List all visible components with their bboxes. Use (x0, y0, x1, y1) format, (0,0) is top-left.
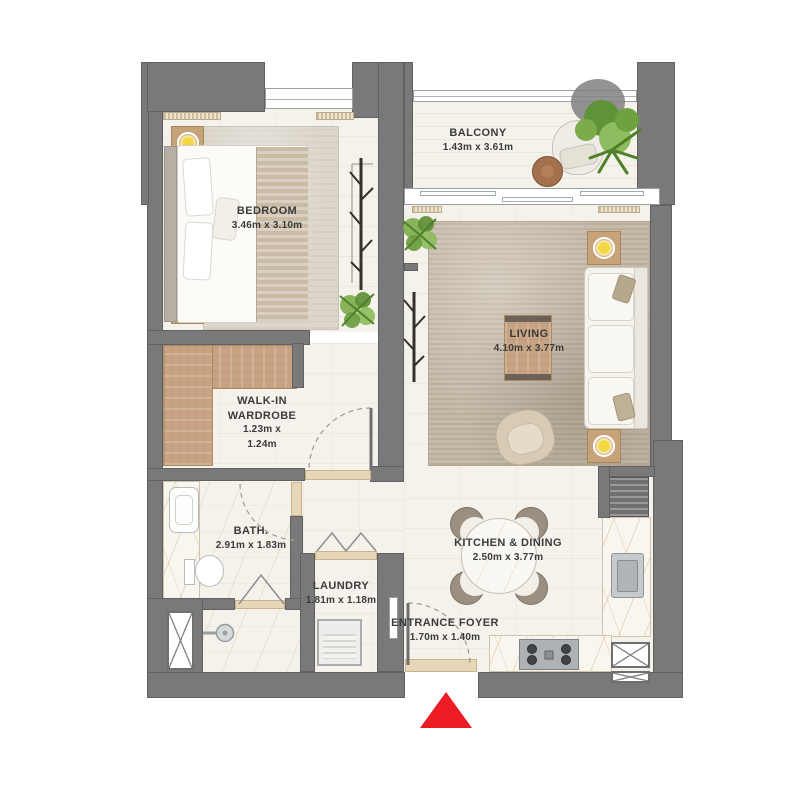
wall-top-left (147, 62, 265, 112)
stove-center (545, 650, 554, 659)
window-glass-line (266, 99, 352, 100)
kitchen-sink (611, 553, 644, 598)
balcony-parapet (413, 90, 637, 102)
bedroom-dims: 3.46m x 3.10m (232, 219, 302, 234)
laundry-door-threshold (315, 551, 377, 560)
bath-door-threshold (291, 482, 302, 516)
table-lamp (593, 237, 615, 259)
bedroom-label: BEDROOM 3.46m x 3.10m (232, 204, 302, 233)
walkin-name-line1: WALK-IN (228, 394, 297, 409)
bed-headboard (164, 146, 177, 322)
burner (561, 644, 571, 654)
wall-laundry-left (300, 553, 315, 672)
balcony-name: BALCONY (443, 126, 513, 141)
pillow (183, 221, 214, 280)
burner (527, 644, 537, 654)
stove-cooktop (519, 639, 579, 670)
foyer-label: ENTRANCE FOYER 1.70m x 1.40m (391, 616, 499, 645)
entry-door-threshold (405, 659, 477, 672)
glass-pane (420, 191, 496, 196)
coffee-table-edge (505, 316, 551, 322)
toilet (195, 555, 224, 587)
kitchen-label: KITCHEN & DINING 2.50m x 3.77m (454, 536, 562, 565)
bath-sink (169, 487, 199, 533)
glass-pane (502, 197, 573, 202)
glass-pane (580, 191, 644, 196)
laundry-dims: 1.81m x 1.18m (306, 594, 376, 609)
sofa-cushion (588, 325, 634, 373)
walkin-name-line2: WARDROBE (228, 409, 297, 424)
duct-shaft (167, 611, 194, 670)
coffee-table-edge (505, 374, 551, 380)
burner (561, 655, 571, 665)
wall-living-right (650, 205, 672, 470)
balcony-side-table (532, 156, 563, 187)
wardrobe-counter-left (163, 345, 213, 466)
wall-left (147, 62, 163, 672)
wall-center (378, 62, 404, 482)
laundry-name: LAUNDRY (306, 579, 376, 594)
bed (177, 145, 308, 323)
wall-bottom-left (147, 672, 405, 698)
hallway-door-threshold (305, 470, 371, 480)
kitchen-name: KITCHEN & DINING (454, 536, 562, 551)
living-name: LIVING (494, 327, 564, 342)
parapet-line (414, 96, 636, 97)
table-lamp (593, 435, 615, 457)
kitchen-dims: 2.50m x 3.77m (454, 551, 562, 566)
corridor-floor (303, 470, 404, 555)
wall-walkin-bottom (147, 468, 305, 481)
sofa (584, 267, 648, 429)
bedroom-window (265, 88, 353, 109)
sink-basin (175, 495, 193, 525)
floor-plan: BEDROOM 3.46m x 3.10m BALCONY 1.43m x 3.… (0, 0, 800, 800)
window-sill-hatch (598, 206, 640, 213)
balcony-chair-cushion (558, 142, 599, 170)
walkin-dims-line1: 1.23m x (228, 423, 297, 438)
sofa-back (634, 268, 647, 428)
window-sill-hatch (163, 112, 221, 120)
toilet-tank (184, 559, 195, 585)
bath-name: BATH. (216, 524, 286, 539)
bath-dims: 2.91m x 1.83m (216, 539, 286, 554)
washing-machine (317, 619, 362, 666)
washer-vents (323, 634, 356, 659)
balcony-label: BALCONY 1.43m x 3.61m (443, 126, 513, 155)
foyer-dims: 1.70m x 1.40m (391, 631, 499, 646)
armchair-seat (504, 420, 546, 458)
sofa-side-table-top (587, 231, 621, 265)
shower-floor (203, 600, 303, 672)
sofa-side-table-bottom (587, 429, 621, 463)
duct-shaft (611, 642, 650, 668)
laundry-label: LAUNDRY 1.81m x 1.18m (306, 579, 376, 608)
wall-hall-door-post (370, 466, 404, 482)
foyer-name: ENTRANCE FOYER (391, 616, 499, 631)
sink-tub (617, 560, 638, 592)
wall-living-left-stub (404, 263, 418, 271)
duct-shaft (611, 671, 650, 683)
wall-center-right-ext (404, 62, 413, 205)
wall-kitchen-right (653, 440, 683, 698)
shower-door-threshold (235, 600, 285, 609)
bath-label: BATH. 2.91m x 1.83m (216, 524, 286, 553)
window-sill-hatch (412, 206, 442, 213)
sliding-glass-door (404, 188, 660, 205)
burner (527, 655, 537, 665)
wall-walkin-right (292, 343, 304, 388)
wall-bedroom-bottom (147, 330, 310, 345)
walkin-label: WALK-IN WARDROBE 1.23m x 1.24m (228, 394, 297, 452)
living-dims: 4.10m x 3.77m (494, 342, 564, 357)
window-sill-hatch (316, 112, 354, 120)
wall-balcony-right (637, 62, 675, 205)
bed-throw-blanket (256, 147, 308, 322)
balcony-dims: 1.43m x 3.61m (443, 141, 513, 156)
walkin-dims-line2: 1.24m (228, 438, 297, 453)
pillow (182, 157, 214, 217)
bedroom-name: BEDROOM (232, 204, 302, 219)
wall-kitchen-stub-v (598, 466, 610, 518)
wall-bottom-right (478, 672, 683, 698)
living-label: LIVING 4.10m x 3.77m (494, 327, 564, 356)
entrance-marker (420, 692, 472, 728)
